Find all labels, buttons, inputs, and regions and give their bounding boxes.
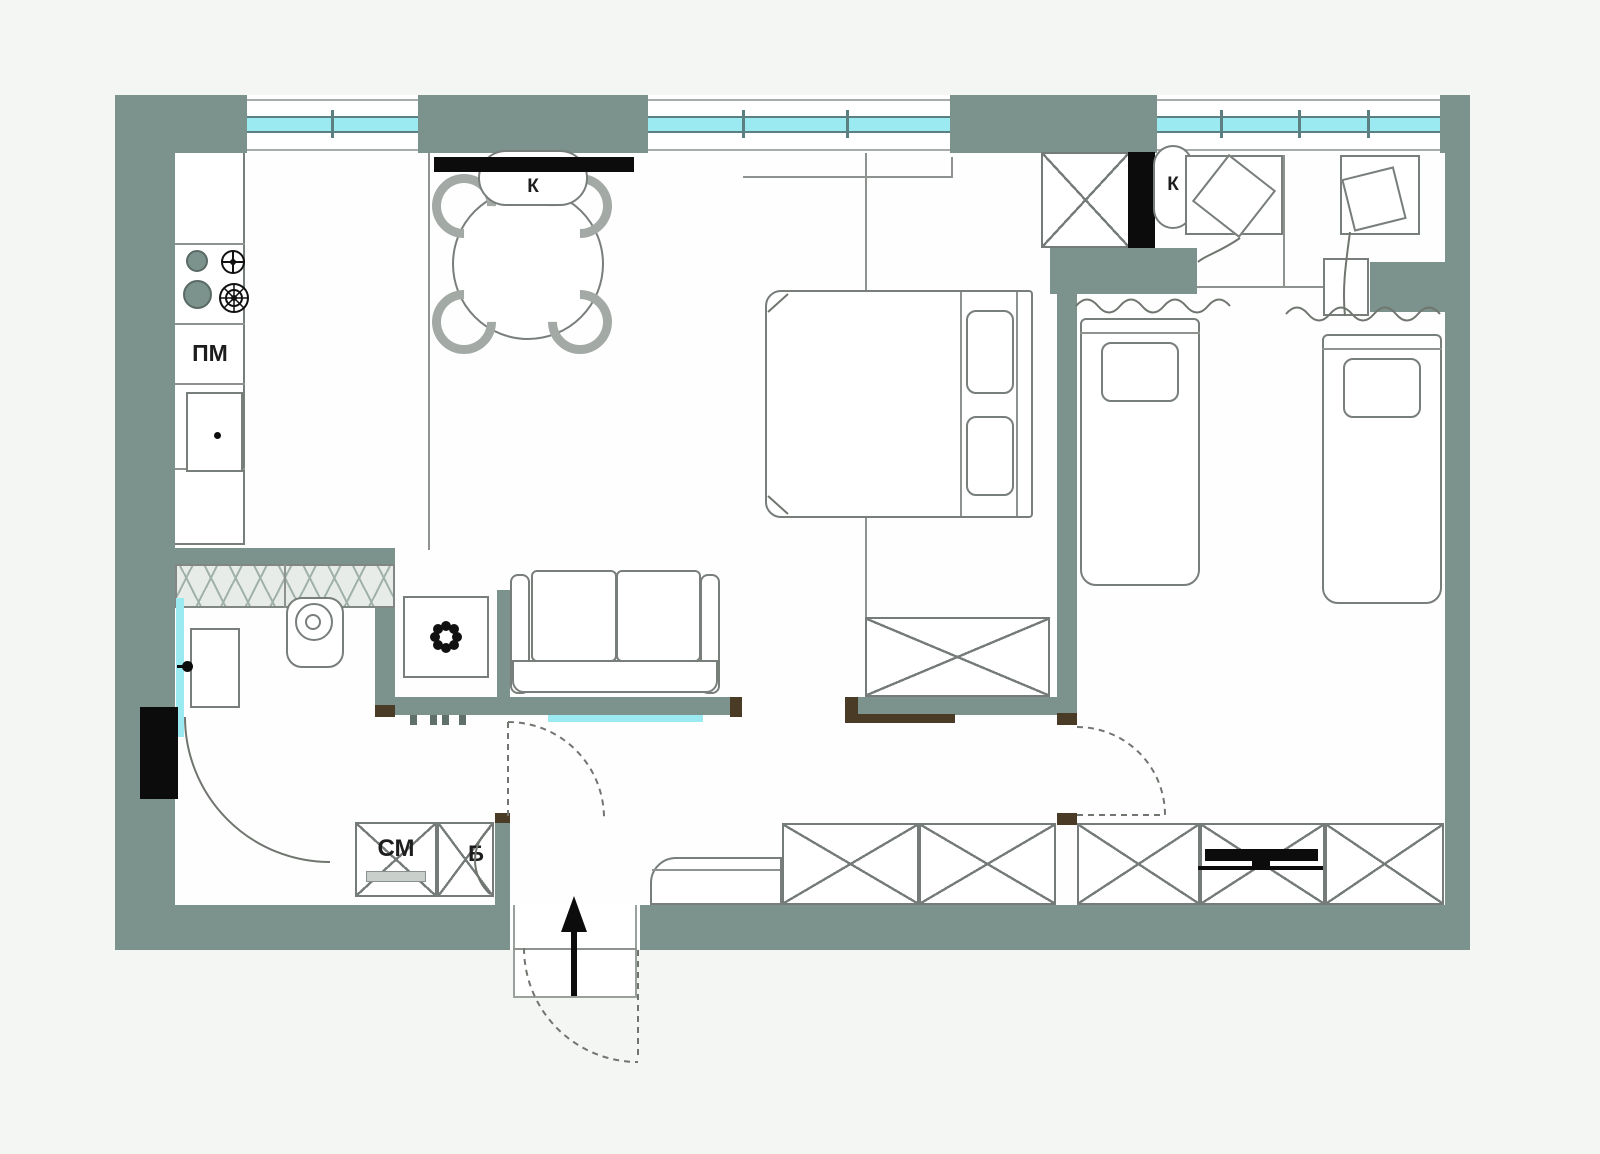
children-door-jamb-bottom	[1057, 813, 1077, 825]
children-nightstand	[1323, 258, 1369, 316]
window-living-glass	[648, 116, 950, 133]
window-children-inner-line	[1157, 149, 1440, 151]
bed-pillow	[966, 416, 1014, 496]
ac-living-label: К	[478, 172, 588, 202]
dishwasher-label: ПМ	[175, 336, 245, 370]
window-kitchen-inner-line	[247, 149, 418, 151]
hall-wardrobe-cell	[782, 823, 919, 905]
window-living-inner-line	[648, 149, 950, 151]
bathroom-top-wall	[175, 548, 395, 564]
bedroom-children-wall	[1057, 294, 1077, 713]
floor-plan: ПМ К СМ Б К	[0, 0, 1600, 1154]
double-bed-headboard-line	[1016, 292, 1018, 516]
children-right-stub-wall	[1370, 262, 1445, 312]
window-kitchen-mullion	[331, 110, 334, 138]
sofa-seat-cushion	[531, 570, 617, 662]
window-living-outer-line	[648, 99, 950, 101]
stove-burner-icon	[186, 250, 208, 272]
tv-icon	[434, 157, 634, 172]
single-bed-right-headline	[1322, 348, 1442, 350]
bedroom-closet	[1041, 152, 1130, 248]
window-children-mullion-1	[1220, 110, 1223, 138]
hall-wardrobe-cell	[919, 823, 1056, 905]
living-opening-jamb-left	[730, 697, 742, 717]
single-bed-left-headline	[1080, 332, 1200, 334]
double-bed-head-line	[960, 292, 962, 516]
children-wardrobe-cell	[1077, 823, 1200, 905]
children-left-thick-wall	[1050, 248, 1197, 294]
partition-tick-1	[410, 715, 417, 725]
bedroom-wardrobe	[865, 617, 1050, 697]
children-tv-icon	[1205, 849, 1318, 861]
window-kitchen-outer-line	[247, 99, 418, 101]
bathroom-cabinet-divider	[284, 564, 286, 608]
bed-pillow	[1101, 342, 1179, 402]
study-zone-line	[1197, 286, 1323, 288]
partition-tick-2	[430, 715, 437, 725]
bed-pillow	[966, 310, 1014, 394]
plant-table	[403, 596, 489, 678]
sofa-backrest	[512, 660, 718, 693]
utility-shaft	[140, 707, 178, 799]
counter-divider-2	[175, 323, 245, 325]
partition-tick-4	[459, 715, 466, 725]
counter-divider-1	[175, 243, 245, 245]
bedroom-shaft	[1128, 152, 1155, 248]
washing-machine-tray	[366, 871, 426, 882]
glazed-partition-strip	[548, 715, 703, 722]
apartment-floor	[175, 153, 1445, 905]
bedroom-zoning-line-top	[865, 153, 867, 290]
bathroom-wall-jamb	[375, 705, 395, 717]
hall-living-wall-right	[858, 697, 1057, 715]
partition-tick-3	[442, 715, 449, 725]
bedroom-zoning-line-bottom	[865, 518, 867, 617]
bathroom-sink	[190, 628, 240, 708]
faucet-stem	[177, 665, 187, 668]
niche-stub-wall	[497, 590, 510, 697]
children-door-jamb-top	[1057, 713, 1077, 725]
entry-stub-wall	[495, 820, 510, 905]
sliding-door-leaf	[845, 714, 955, 723]
washing-machine-label: СМ	[355, 834, 437, 864]
sofa-seat-cushion	[616, 570, 701, 662]
hall-bench	[650, 857, 782, 905]
stove-burner-icon	[183, 280, 212, 309]
children-wardrobe-cell	[1325, 823, 1444, 905]
curtain-rail-corner	[951, 157, 953, 178]
hall-living-wall-left	[375, 697, 730, 715]
bed-pillow	[1343, 358, 1421, 418]
entrance-arrow-icon	[561, 896, 587, 932]
curtain-rail-line	[743, 176, 953, 178]
hall-bench-line	[652, 869, 780, 871]
boiler-label: Б	[458, 840, 494, 868]
sink-drain-icon	[214, 432, 221, 439]
window-living-mullion-2	[846, 110, 849, 138]
counter-divider-3	[175, 383, 245, 385]
window-living-mullion-1	[742, 110, 745, 138]
children-tv-shelf	[1198, 866, 1323, 870]
toilet-drain	[305, 614, 321, 630]
window-children-mullion-2	[1298, 110, 1301, 138]
desk-divider-line	[1283, 155, 1285, 288]
window-children-mullion-3	[1367, 110, 1370, 138]
entrance-arrow-shaft	[571, 928, 577, 996]
window-children-outer-line	[1157, 99, 1440, 101]
kitchen-zone-line	[428, 153, 430, 550]
entry-stub-jamb	[495, 813, 510, 823]
